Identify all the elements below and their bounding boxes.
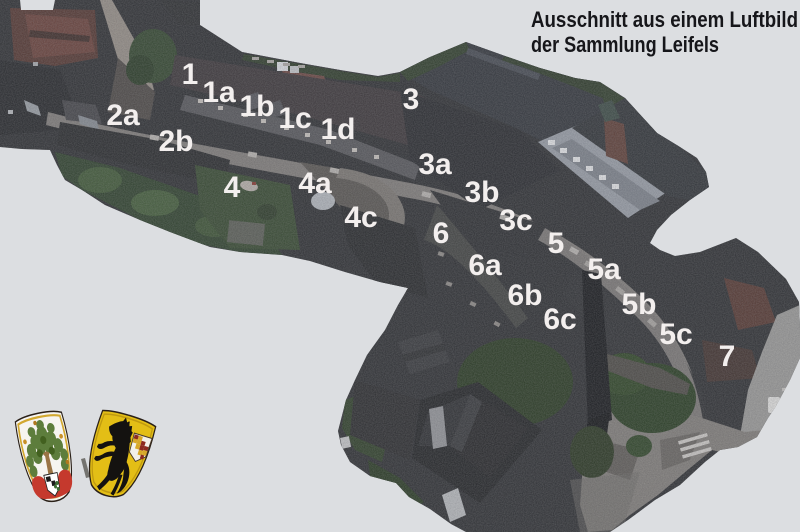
svg-text:4c: 4c (344, 201, 377, 234)
svg-text:5: 5 (548, 227, 565, 260)
svg-text:5b: 5b (621, 288, 656, 321)
svg-text:3a: 3a (418, 148, 452, 181)
svg-text:6: 6 (433, 217, 450, 250)
svg-text:5c: 5c (659, 318, 692, 351)
svg-text:Ausschnitt aus einem Luftbild: Ausschnitt aus einem Luftbild (531, 7, 798, 32)
svg-text:6c: 6c (543, 303, 576, 336)
svg-text:2b: 2b (158, 125, 193, 158)
svg-text:1b: 1b (239, 90, 274, 123)
svg-text:2a: 2a (106, 99, 140, 132)
svg-text:6a: 6a (468, 249, 502, 282)
svg-text:3: 3 (403, 83, 420, 116)
svg-text:3c: 3c (499, 204, 532, 237)
svg-text:5a: 5a (587, 253, 621, 286)
svg-text:7: 7 (719, 340, 736, 373)
svg-text:4: 4 (224, 171, 241, 204)
svg-text:1: 1 (182, 58, 199, 91)
svg-text:4a: 4a (298, 167, 332, 200)
svg-text:1d: 1d (320, 113, 355, 146)
svg-text:6b: 6b (507, 279, 542, 312)
svg-text:der Sammlung Leifels: der Sammlung Leifels (531, 32, 719, 57)
svg-text:1a: 1a (202, 76, 236, 109)
svg-text:1c: 1c (278, 102, 311, 135)
svg-text:3b: 3b (464, 176, 499, 209)
